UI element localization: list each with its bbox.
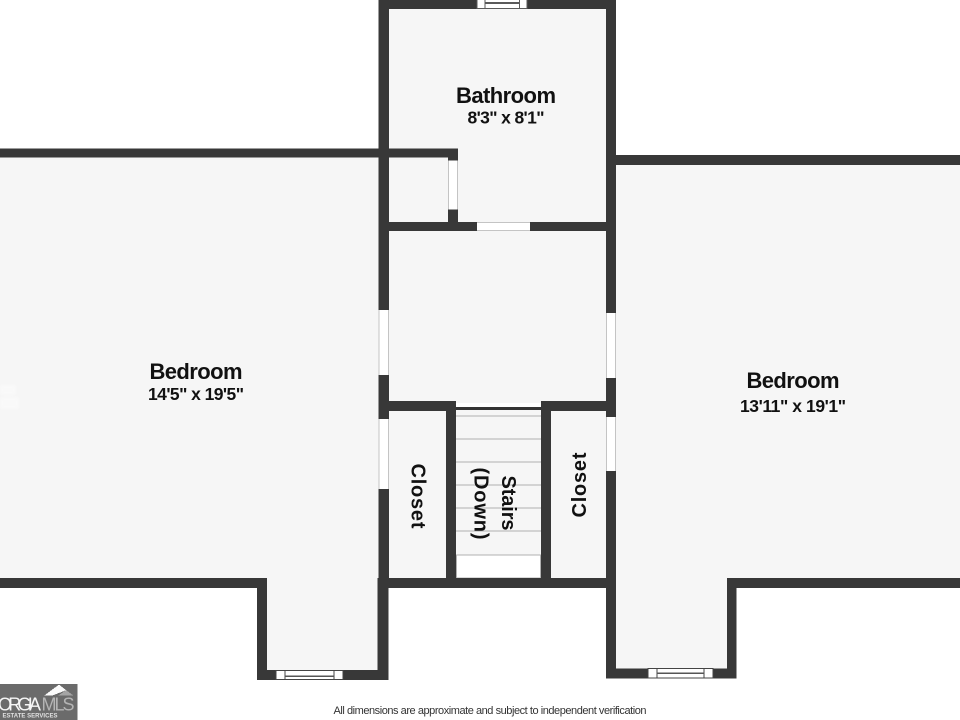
svg-text:All dimensions are approximate: All dimensions are approximate and subje… bbox=[334, 705, 647, 717]
svg-text:Stairs: Stairs bbox=[497, 476, 519, 531]
svg-text:8'3" x 8'1": 8'3" x 8'1" bbox=[468, 108, 545, 128]
svg-text:ORGIA: ORGIA bbox=[0, 695, 41, 715]
svg-text:Bedroom: Bedroom bbox=[150, 359, 243, 384]
svg-text:Bathroom: Bathroom bbox=[456, 83, 556, 108]
svg-text:Bedroom: Bedroom bbox=[747, 368, 840, 393]
svg-text:13'11" x 19'1": 13'11" x 19'1" bbox=[740, 396, 846, 416]
svg-text:(Down): (Down) bbox=[470, 468, 492, 540]
svg-text:14'5" x 19'5": 14'5" x 19'5" bbox=[148, 384, 244, 404]
svg-text:Closet: Closet bbox=[569, 452, 591, 517]
svg-text:MLS: MLS bbox=[42, 695, 75, 715]
svg-text:Closet: Closet bbox=[407, 464, 429, 529]
svg-text:ESTATE SERVICES: ESTATE SERVICES bbox=[3, 714, 58, 720]
